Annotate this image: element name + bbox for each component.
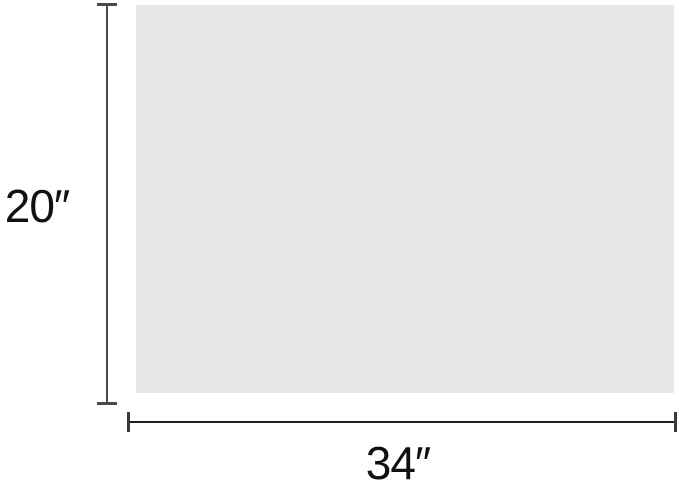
height-dimension-bottom-cap bbox=[97, 402, 117, 405]
height-dimension-line bbox=[106, 4, 108, 404]
height-dimension-label: 20″ bbox=[0, 181, 77, 231]
height-dimension-top-cap bbox=[97, 3, 117, 6]
width-dimension-left-cap bbox=[127, 412, 130, 432]
width-dimension-line bbox=[128, 421, 676, 423]
width-dimension-right-cap bbox=[674, 412, 677, 432]
dimension-diagram: 20″ 34″ bbox=[0, 0, 679, 483]
panel-rectangle bbox=[136, 5, 674, 393]
width-dimension-label: 34″ bbox=[353, 438, 443, 483]
